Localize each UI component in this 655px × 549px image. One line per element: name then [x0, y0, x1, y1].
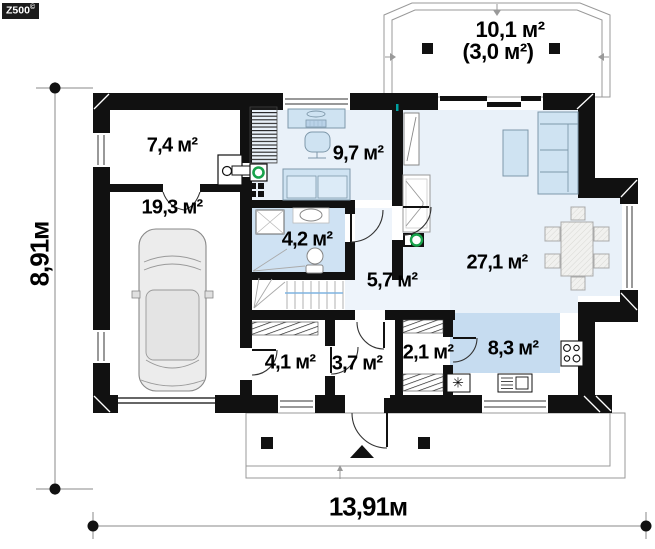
brand-logo: Z500©: [2, 3, 39, 19]
terrace-column: [422, 43, 433, 54]
room-label-garage: 19,3 м²: [141, 197, 202, 220]
porch-outline: [246, 413, 625, 479]
garage-window: [98, 332, 104, 361]
room-label-utility: 7,4 м²: [147, 135, 198, 158]
utility-window: [98, 135, 104, 165]
stair-hatch-strip: [250, 107, 277, 163]
room-label-living-room: 27,1 м²: [466, 252, 527, 275]
sofa: [538, 112, 578, 194]
terrace-sliding-door: [440, 96, 541, 107]
room-label-office: 9,7 м²: [333, 143, 384, 166]
stove: [561, 341, 583, 366]
room-label-bathroom: 4,2 м²: [282, 229, 333, 252]
room-label-pantry: 2,1 м²: [403, 342, 454, 365]
washbasin: [300, 209, 322, 221]
room-label-hallway: 5,7 м²: [367, 270, 418, 293]
terrace-column: [549, 43, 560, 54]
room-label-wardrobe: 4,1 м²: [265, 352, 316, 375]
bay-window: [627, 206, 632, 288]
dimension-height-label: 8,91м: [25, 222, 56, 287]
fridge-symbol: ✳: [452, 375, 464, 392]
wardrobe-window: [280, 401, 313, 407]
kitchen-window: [484, 401, 546, 407]
porch-column: [261, 437, 273, 449]
terrace-area-alt-label: (3,0 м²): [463, 39, 534, 65]
floor-plan-page: Z500© 10,1 м² (3,0 м²) 7,4 м² 19,3 м² 9,…: [0, 0, 655, 549]
dimension-width-label: 13,91м: [329, 492, 407, 523]
garage-door: [118, 398, 215, 403]
room-label-entry: 3,7 м²: [332, 353, 383, 376]
water-heater-icon: [254, 168, 264, 178]
office-window: [285, 99, 348, 104]
coffee-table: [503, 130, 528, 176]
entrance-marker: [350, 445, 374, 458]
office-chair: [305, 132, 330, 152]
floor-plan-drawing: [0, 0, 655, 549]
porch-column: [418, 437, 430, 449]
garage-car: [132, 229, 213, 391]
kitchen-sink: [498, 374, 532, 392]
room-label-kitchen: 8,3 м²: [488, 338, 539, 361]
vent-tick: [396, 104, 399, 111]
